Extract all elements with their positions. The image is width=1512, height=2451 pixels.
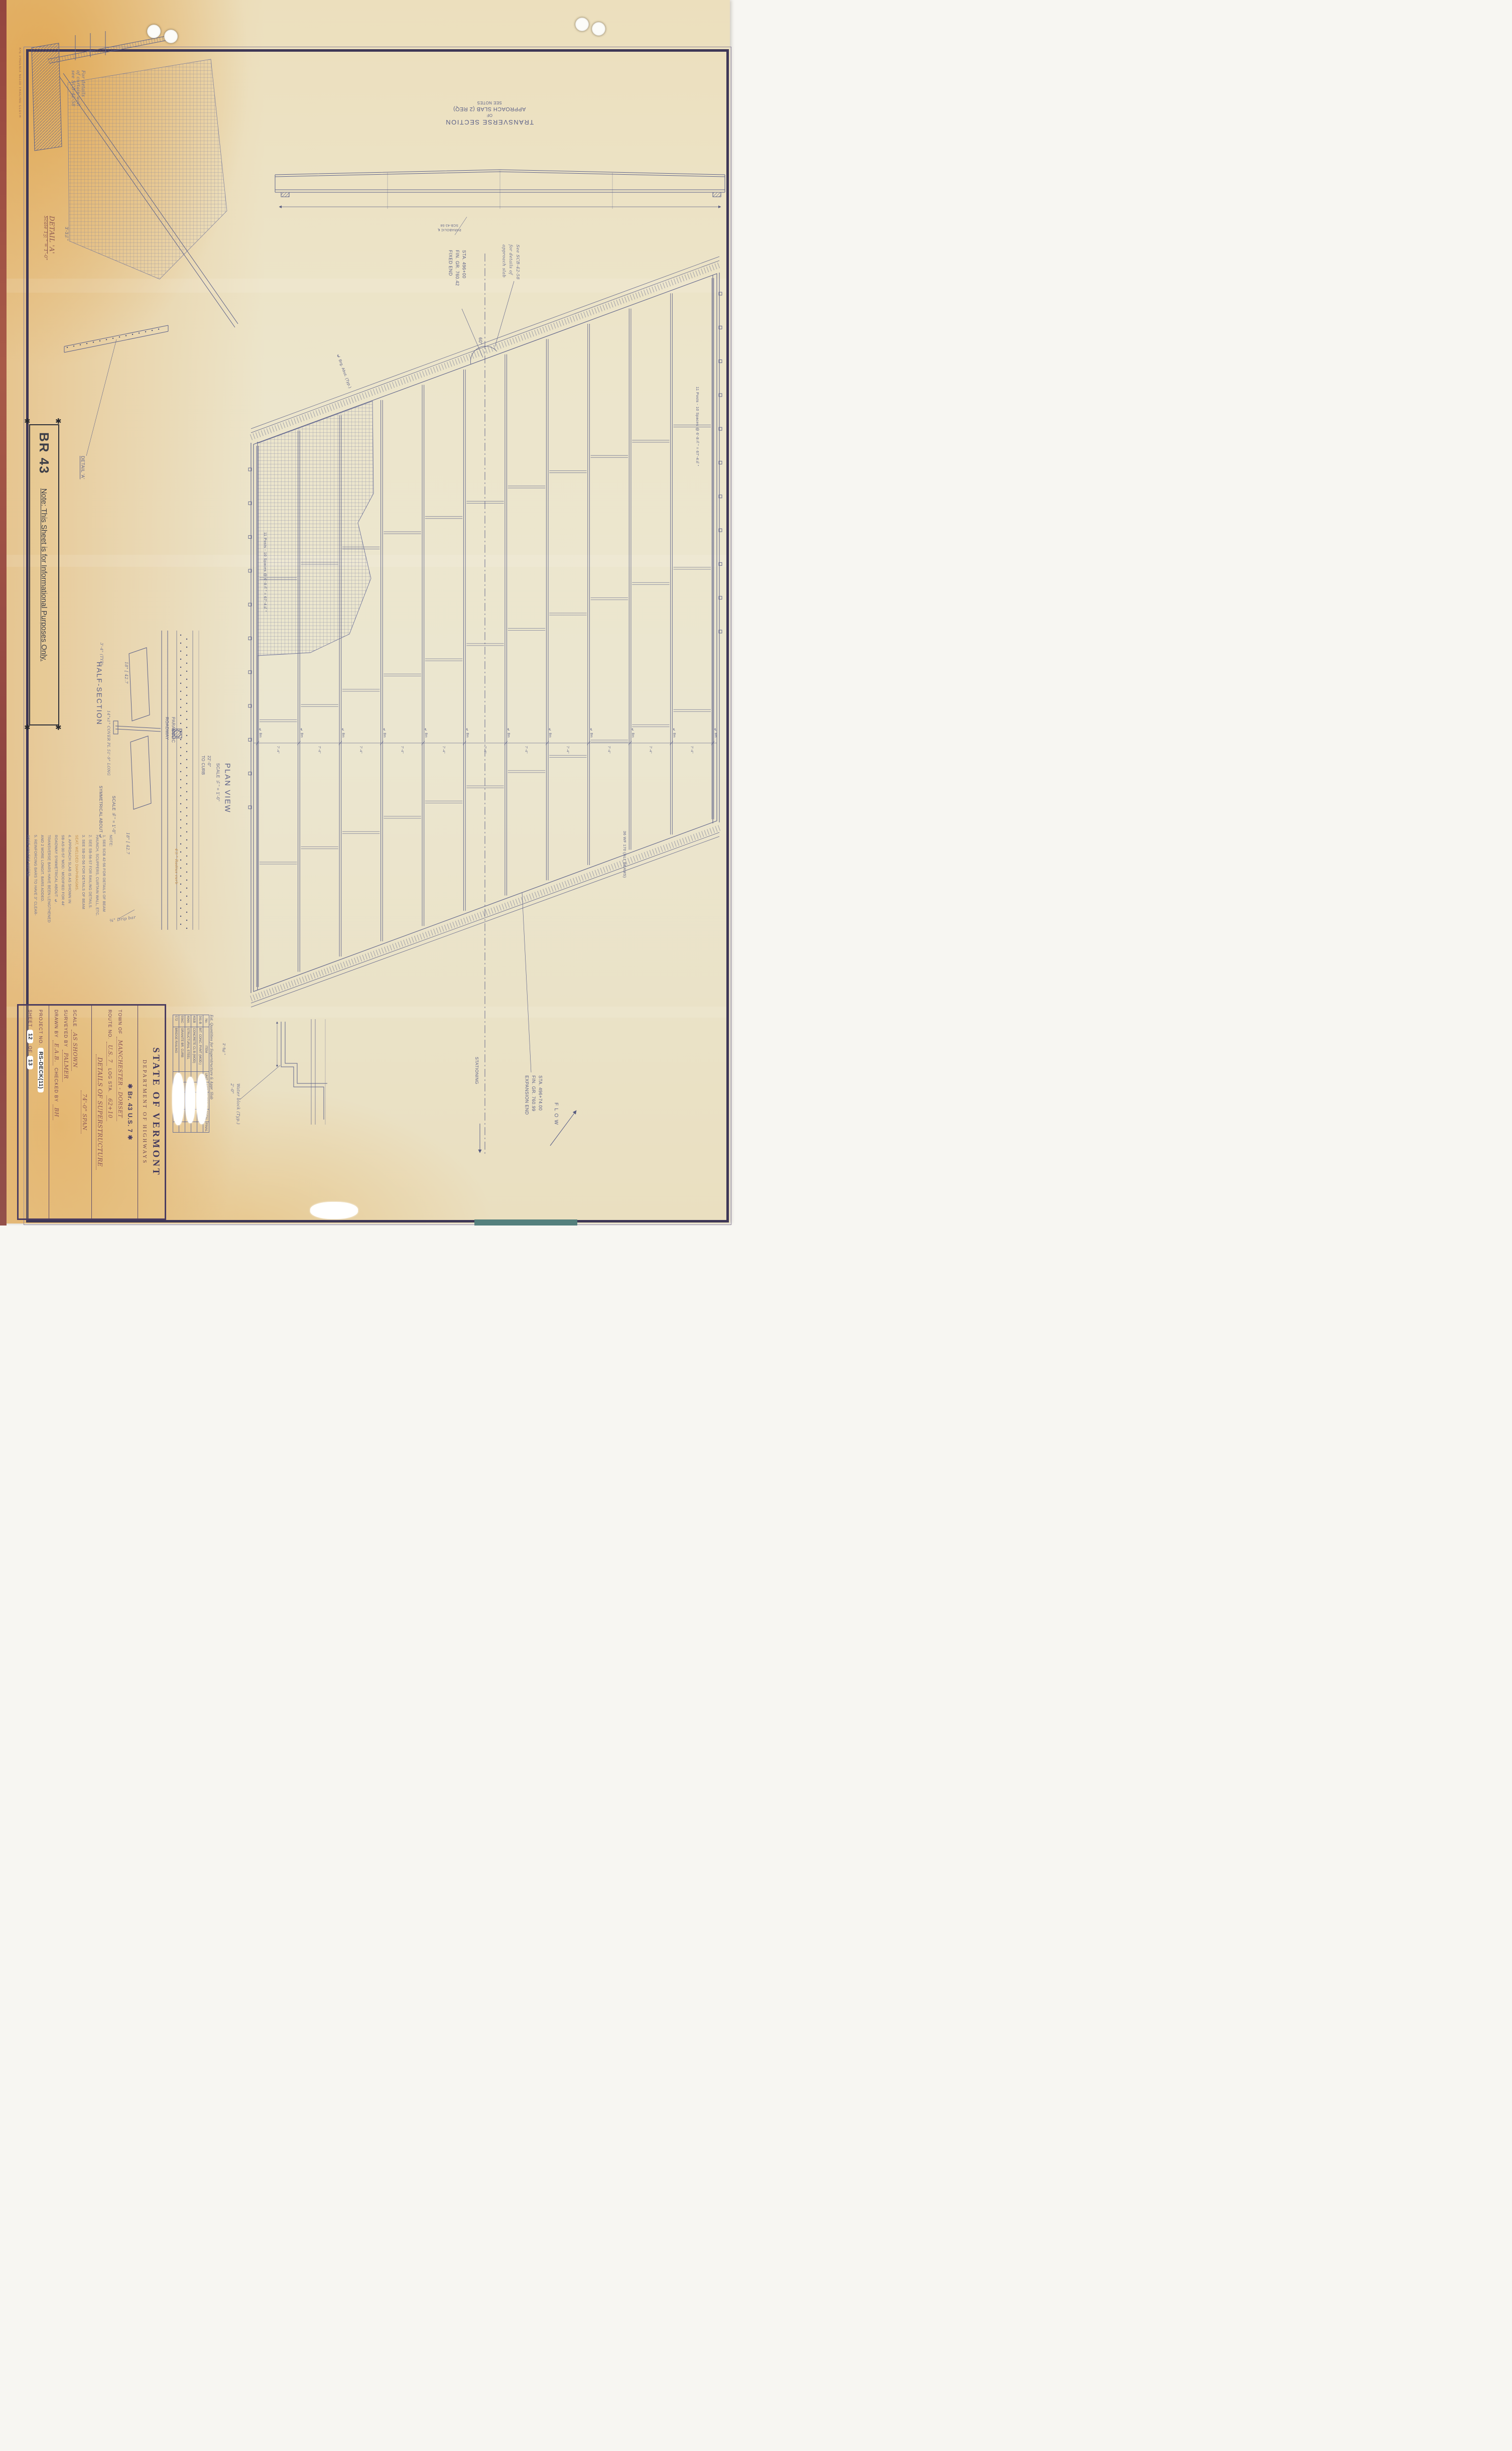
- text-line: FIXED END: [447, 250, 454, 325]
- route-label: ROUTE NO.: [107, 1010, 112, 1039]
- posts-spacing-left: 11 Posts - 10 Spaces @ 6'-8⅞" = 67'-4¾": [263, 532, 268, 813]
- text-line: NOTE:: [107, 835, 114, 1022]
- rebar-dot: [186, 759, 187, 760]
- rebar-dot: [180, 892, 181, 893]
- rebar-dot: [186, 904, 187, 905]
- quantities-block: Est. Quantities for Superstructure & App…: [169, 1015, 213, 1133]
- text-line: FIN. GR. 760.42: [454, 250, 461, 325]
- rebar-dot: [180, 731, 181, 732]
- rebar-dot: [180, 659, 181, 660]
- rebar-dot: [180, 763, 181, 764]
- rebar-dot: [180, 667, 181, 668]
- agency-name: STATE OF VERMONT: [150, 1010, 161, 1214]
- rebar-dot: [186, 751, 187, 752]
- drawn-value: E.A.B.: [53, 1040, 60, 1065]
- whiteout-blob: [310, 1202, 358, 1219]
- posts-spacing-right: 11 Posts - 10 Spaces @ 6'-8⅞" = 67'-4¾": [695, 387, 700, 668]
- quantities-cell: 556C: [179, 1015, 185, 1027]
- text-line: See SCB-42-58: [514, 244, 521, 312]
- beam-size-label: 36 WF 170 (ALL BEAMS): [622, 831, 627, 951]
- rebar-dot: [180, 900, 181, 901]
- detail-a-title-text: DETAIL 'A': [48, 216, 55, 291]
- water-block-label: Water block (Typ.)2'-0": [229, 1083, 241, 1119]
- caption-line: APPROACH SLAB (2 REQ): [399, 105, 580, 112]
- rebar-dot: [186, 880, 187, 881]
- beam-centerline-label: ℄ Bm: [259, 728, 262, 742]
- text-line: for details of: [507, 244, 514, 312]
- text-line: ROADWAY: [164, 717, 170, 797]
- caption-line: OF: [399, 112, 580, 118]
- rebar-dot: [180, 819, 181, 820]
- beam-centerline-label: ℄ Bm: [465, 728, 469, 742]
- rebar-dot: [112, 338, 113, 339]
- whiteout-blob: [196, 1074, 207, 1124]
- paper-edge: [0, 0, 7, 1225]
- text-line: Water block (Typ.): [235, 1083, 241, 1119]
- rebar-dot: [186, 928, 187, 929]
- rebar-dot: [180, 643, 181, 644]
- sheet-number: 12: [27, 1030, 33, 1043]
- project-label: PROJECT NO.: [38, 1010, 43, 1045]
- bay-dim-label: 7'-4": [607, 746, 611, 766]
- parabolic-roadway-label: PARABOLICROADWAY: [164, 717, 177, 797]
- rebar-dot: [180, 851, 181, 852]
- text-line: HAUNCH, SCUPPERS, CURTAIN WALL, ETC.: [94, 835, 101, 1022]
- rebar-dot: [180, 868, 181, 869]
- text-line: EXPANSION END: [523, 1075, 530, 1158]
- text-line: 2. SEE SB-56-57 FOR RAILING DETAILS.: [87, 835, 94, 1022]
- transverse-section-caption: TRANSVERSE SECTION OF APPROACH SLAB (2 R…: [399, 99, 580, 127]
- rebar-dot: [99, 340, 100, 341]
- plan-view-deck: [251, 254, 719, 1155]
- text-line: For details: [80, 70, 85, 156]
- beam-centerline-label: ℄ Bm: [383, 728, 386, 742]
- bay-dim-label: 7'-4": [400, 746, 404, 766]
- rebar-dot: [186, 735, 187, 736]
- title-block: STATE OF VERMONT DEPARTMENT OF HIGHWAYS …: [17, 1004, 166, 1220]
- radius-curb-label: 4½" Radius curb: [174, 848, 179, 904]
- corner-asterisk: ✱: [24, 417, 31, 426]
- rebar-dot: [186, 727, 187, 728]
- rebar-dot: [180, 635, 181, 636]
- rebar-dot: [186, 711, 187, 712]
- rebar-dot: [180, 651, 181, 652]
- rebar-dot: [180, 795, 181, 796]
- rebar-dot: [139, 332, 140, 333]
- scale-value: AS SHOWN: [71, 1030, 78, 1071]
- blm-stamp: B.L.M. INC.: [35, 92, 38, 117]
- quantities-cell: CONCRETE CL B (MOD): [191, 1027, 197, 1071]
- detail-a-callout: DETAIL 'A': [80, 456, 85, 496]
- quantities-cell: STRUCTURAL STEEL: [185, 1027, 191, 1071]
- cover-plate-label: 14"x1" COVER PL 51'-9" LONG: [106, 710, 111, 796]
- rebar-dot: [186, 719, 187, 720]
- rebar-dot: [186, 823, 187, 824]
- quantities-cell: [185, 1122, 191, 1133]
- punch-hole: [575, 18, 589, 31]
- rebar-dot: [186, 639, 187, 640]
- curtain-wall-note: For detailsof curtain wallsee SCB-42-58: [70, 70, 85, 156]
- approach-slab-note: See SCB-42-58for details ofapproach slab: [500, 244, 521, 312]
- beam-centerline-label: ℄ Bm: [424, 728, 428, 742]
- curb-dim-label: 22'-0"TO CURB: [200, 756, 212, 811]
- channel-label-bottom: 18" [ 42.7: [125, 832, 130, 878]
- rebar-dot: [80, 344, 81, 345]
- bay-dim-label: 7'-4": [690, 746, 694, 766]
- transverse-sub-labels: PARABOLIC ℄SCB-42-58: [429, 223, 469, 232]
- text-line: FIN. GR. 760.99: [530, 1075, 537, 1158]
- town-value: MANCHESTER - DORSET: [116, 1037, 123, 1121]
- rebar-dot: [180, 715, 181, 716]
- beam-centerline-label: ℄ Bm: [590, 728, 593, 742]
- surveyed-value: PALMER: [62, 1050, 69, 1082]
- detail-a-drawing: [32, 31, 238, 456]
- punch-hole: [592, 22, 605, 36]
- rebar-dot: [186, 671, 187, 672]
- bridge-route-line: ✱ Br. 43 U.S. 7 ✱: [127, 1010, 134, 1214]
- rebar-dot: [180, 916, 181, 917]
- rebar-dot: [186, 679, 187, 680]
- detail-a-scale: Scale 1½" = 1'-0": [43, 216, 48, 291]
- sheet-total: 13: [27, 1056, 33, 1069]
- beam-centerline-label: ℄ Bm: [548, 728, 552, 742]
- rebar-dot: [186, 912, 187, 913]
- flow-label: FLOW: [553, 1102, 559, 1143]
- text-line: 4. APPROACH SLAB IS AS SHOWN IN: [66, 835, 73, 1022]
- quantities-title: Est. Quantities for Superstructure & App…: [209, 1015, 213, 1133]
- rebar-dot: [180, 884, 181, 885]
- bay-dim-label: 7'-4": [442, 746, 445, 766]
- quantities-cell: GRANITE BR. CURB: [179, 1027, 185, 1071]
- quantities-cell: 401B: [191, 1015, 197, 1027]
- rebar-dot: [180, 803, 181, 804]
- rebar-dot: [73, 345, 74, 346]
- scanned-drawing-sheet: K•E PHOENIX No100 TRACING CLOTH B.L.M. I…: [0, 0, 756, 1225]
- scan-artifact: [474, 1219, 577, 1225]
- title-block-sheet-info: PROJECT NO. RS-DECK(11) SHEET 12 OF 13: [22, 1006, 49, 1218]
- plan-view-title: PLAN VIEW SCALE ¼" = 1'-0": [214, 763, 233, 874]
- rebar-dot: [180, 811, 181, 812]
- bay-dim-label: 7'-4": [566, 746, 569, 766]
- rebar-dot: [180, 699, 181, 700]
- rebar-dot: [132, 334, 133, 335]
- dim-2-5-label: 2'-5¾": [222, 1043, 225, 1063]
- text-line: 3. SEE SB-20-56 FOR DETAILS OF BEAM: [80, 835, 87, 1022]
- whiteout-blob: [172, 1073, 184, 1125]
- rebar-dot: [186, 767, 187, 768]
- rebar-dot: [186, 799, 187, 800]
- text-line: SB-AS-30-57 'MOD.' MODIFIED FOR 44': [59, 835, 66, 1022]
- typ-dim-label: 3'-4" (TYP): [99, 643, 104, 678]
- general-notes: NOTE:1. SEE SCB 42-56 FOR DETAILS OF BEA…: [25, 835, 114, 1022]
- ke-tracing-cloth-stamp: K•E PHOENIX No100 TRACING CLOTH: [18, 48, 21, 138]
- br43-note-text: Note: This Sheet is for Informational Pu…: [40, 488, 49, 662]
- of-label: OF: [28, 1046, 33, 1053]
- beam-centerline-label: ℄ Bm: [507, 728, 511, 742]
- log-sta-label: LOG STA.: [107, 1068, 112, 1093]
- route-value: U.S. 7: [106, 1042, 113, 1066]
- detail-a-dim: 3'-3¼": [64, 227, 69, 257]
- rebar-dot: [119, 336, 120, 337]
- rebar-dot: [186, 839, 187, 840]
- rebar-dot: [180, 787, 181, 788]
- half-section-title: HALF-SECTION: [95, 662, 103, 787]
- log-sta-value: 62+10: [106, 1095, 113, 1122]
- text-line: PARABOLIC ℄: [429, 227, 469, 232]
- text-line: ANCE UNLESS NOTED.: [25, 835, 32, 1022]
- rebar-dot: [180, 755, 181, 756]
- department-name: DEPARTMENT OF HIGHWAYS: [142, 1010, 147, 1214]
- rebar-dot: [180, 908, 181, 909]
- rebar-dot: [158, 328, 159, 329]
- bay-dim-label: 7'-4": [649, 746, 652, 766]
- text-line: ROADWAY SYMMETRICAL ABOUT ℄.: [53, 835, 60, 1022]
- rebar-dot: [180, 835, 181, 836]
- detail-a-title: DETAIL 'A' Scale 1½" = 1'-0": [43, 216, 55, 291]
- rebar-dot: [186, 743, 187, 744]
- caption-line: SEE NOTES: [399, 99, 580, 105]
- br43-note-box: BR 43 Note: This Sheet is for Informatio…: [29, 424, 59, 725]
- text-line: 1. SEE SCB 42-56 FOR DETAILS OF BEAM: [100, 835, 107, 1022]
- beam-centerline-label: ℄ Bm: [631, 728, 635, 742]
- rebar-dot: [186, 775, 187, 776]
- rebar-dot: [186, 695, 187, 696]
- town-label: TOWN OF: [117, 1010, 122, 1034]
- rebar-dot: [180, 779, 181, 780]
- quantities-cell: BIT. CONC. PVMT (MOD.): [197, 1027, 203, 1071]
- span-value: 74'-0" SPAN: [81, 1090, 88, 1133]
- rebar-dot: [180, 924, 181, 925]
- quantities-cell: 404A: [185, 1015, 191, 1027]
- rebar-dot: [180, 827, 181, 828]
- rebar-dot: [180, 707, 181, 708]
- rebar-dot: [186, 703, 187, 704]
- text-line: SCB-42-58: [429, 223, 469, 227]
- quantities-cell: 361-B: [197, 1015, 203, 1027]
- half-section-title-text: HALF-SECTION: [95, 662, 103, 787]
- rebar-dot: [180, 843, 181, 844]
- rebar-dot: [152, 330, 153, 331]
- punch-hole: [164, 30, 178, 43]
- rebar-dot: [186, 872, 187, 873]
- rebar-dot: [180, 771, 181, 772]
- rebar-dot: [180, 723, 181, 724]
- rebar-dot: [186, 647, 187, 648]
- bay-dim-label: 7'-4": [483, 746, 486, 766]
- text-line: 5. REINFORCING BARS TO HAVE 3" CLEAR-: [32, 835, 39, 1022]
- rebar-dot: [186, 687, 187, 688]
- title-block-header: STATE OF VERMONT DEPARTMENT OF HIGHWAYS: [138, 1006, 165, 1218]
- text-line: approach slab: [500, 244, 507, 312]
- text-line: STA. 496+00: [460, 250, 467, 325]
- text-line: 22'-0": [206, 756, 212, 811]
- quantities-header: ITEM: [203, 1027, 209, 1071]
- text-line: PARABOLIC: [170, 717, 177, 797]
- caption-line: TRANSVERSE SECTION: [399, 117, 580, 127]
- br43-title: BR 43: [37, 432, 52, 474]
- corner-asterisk: ✱: [24, 723, 31, 732]
- channel-label-top: 18" [ 42.7: [124, 662, 129, 707]
- rebar-dot: [145, 331, 146, 332]
- text-line: SEAT, WELDED DIAPHRAGMS.: [73, 835, 80, 1022]
- rebar-dot: [186, 896, 187, 897]
- bay-dim-label: 7'-4": [317, 746, 321, 766]
- rebar-dot: [186, 888, 187, 889]
- rebar-dot: [186, 831, 187, 832]
- rebar-dot: [67, 347, 68, 348]
- rebar-dot: [180, 675, 181, 676]
- checked-label: CHECKED BY: [54, 1068, 59, 1102]
- title-block-credits: 74'-0" SPAN SCALE AS SHOWN SURVEYED BY P…: [49, 1006, 91, 1218]
- quantities-cell: 572: [173, 1015, 179, 1027]
- rebar-dot: [186, 920, 187, 921]
- surveyed-label: SURVEYED BY: [63, 1010, 68, 1047]
- checked-value: BH: [53, 1105, 60, 1120]
- drawing-title: DETAILS OF SUPERSTRUCTURE: [96, 1054, 103, 1170]
- text-line: see SCB-42-58: [70, 70, 75, 156]
- bay-dim-label: 7'-4": [359, 746, 362, 766]
- transverse-section-drawing: [275, 170, 725, 235]
- punch-hole: [147, 25, 161, 38]
- bay-dim-label: 7'-4": [525, 746, 528, 766]
- title-block-project-id: ✱ Br. 43 U.S. 7 ✱ TOWN OF MANCHESTER - D…: [91, 1006, 138, 1218]
- text-line: STA. 496+74.00: [537, 1075, 544, 1158]
- text-line: of curtain wall: [75, 70, 80, 156]
- rebar-dot: [180, 739, 181, 740]
- corner-asterisk: ✱: [55, 723, 62, 732]
- rebar-dot: [186, 791, 187, 792]
- rebar-dot: [186, 807, 187, 808]
- rebar-dot: [180, 747, 181, 748]
- plan-view-title-text: PLAN VIEW: [221, 763, 233, 874]
- rebar-dot: [106, 339, 107, 340]
- beam-centerline-label: ℄ Bm: [300, 728, 303, 742]
- water-block-detail: [240, 1019, 327, 1125]
- fixed-end-label: STA. 496+00FIN. GR. 760.42FIXED END: [447, 250, 467, 325]
- rebar-dot: [186, 815, 187, 816]
- quantities-cell: [191, 1122, 197, 1133]
- stationing-label: STATIONING: [474, 1057, 479, 1125]
- scale-label: SCALE: [72, 1010, 77, 1027]
- plan-view-scale: SCALE ¼" = 1'-0": [214, 763, 221, 874]
- skew-angle-label: 60°: [478, 337, 483, 357]
- expansion-end-label: STA. 496+74.00FIN. GR. 760.99EXPANSION E…: [523, 1075, 544, 1158]
- quantities-header: FINAL: [203, 1122, 209, 1133]
- text-line: 2'-0": [229, 1083, 235, 1119]
- drawn-label: DRAWN BY: [54, 1010, 59, 1038]
- bay-dim-label: 7'-4": [276, 746, 280, 766]
- rebar-dot: [186, 847, 187, 848]
- beam-centerline-label: ℄ Bm: [341, 728, 345, 742]
- rebar-dot: [180, 683, 181, 684]
- rebar-dot: [186, 655, 187, 656]
- quantities-cell: BRIDGE RAILING: [173, 1027, 179, 1071]
- rebar-dot: [180, 691, 181, 692]
- rebar-dot: [180, 876, 181, 877]
- rebar-dot: [93, 341, 94, 342]
- rebar-dot: [125, 335, 127, 336]
- rebar-dot: [186, 864, 187, 865]
- quantities-header: No.: [203, 1015, 209, 1027]
- rebar-dot: [186, 855, 187, 856]
- sheet-label: SHEET: [28, 1010, 33, 1027]
- rebar-dot: [180, 860, 181, 861]
- corner-asterisk: ✱: [55, 417, 62, 426]
- approach-reinforcement-mesh: [258, 401, 373, 656]
- rebar-dot: [186, 783, 187, 784]
- text-line: TRANSVERSE BARS HAVE BEEN LENGTHENED: [46, 835, 53, 1022]
- whiteout-blob: [185, 1077, 195, 1123]
- rebar-dot: [86, 343, 87, 344]
- rebar-dot: [186, 663, 187, 664]
- project-value: RS-DECK(11): [38, 1048, 44, 1092]
- beam-centerline-label: ℄ Bm: [714, 728, 717, 742]
- beam-centerline-label: ℄ Bm: [673, 728, 676, 742]
- text-line: AND 2 MORE LONGIT. BARS ADDED.: [39, 835, 46, 1022]
- text-line: TO CURB: [200, 756, 206, 811]
